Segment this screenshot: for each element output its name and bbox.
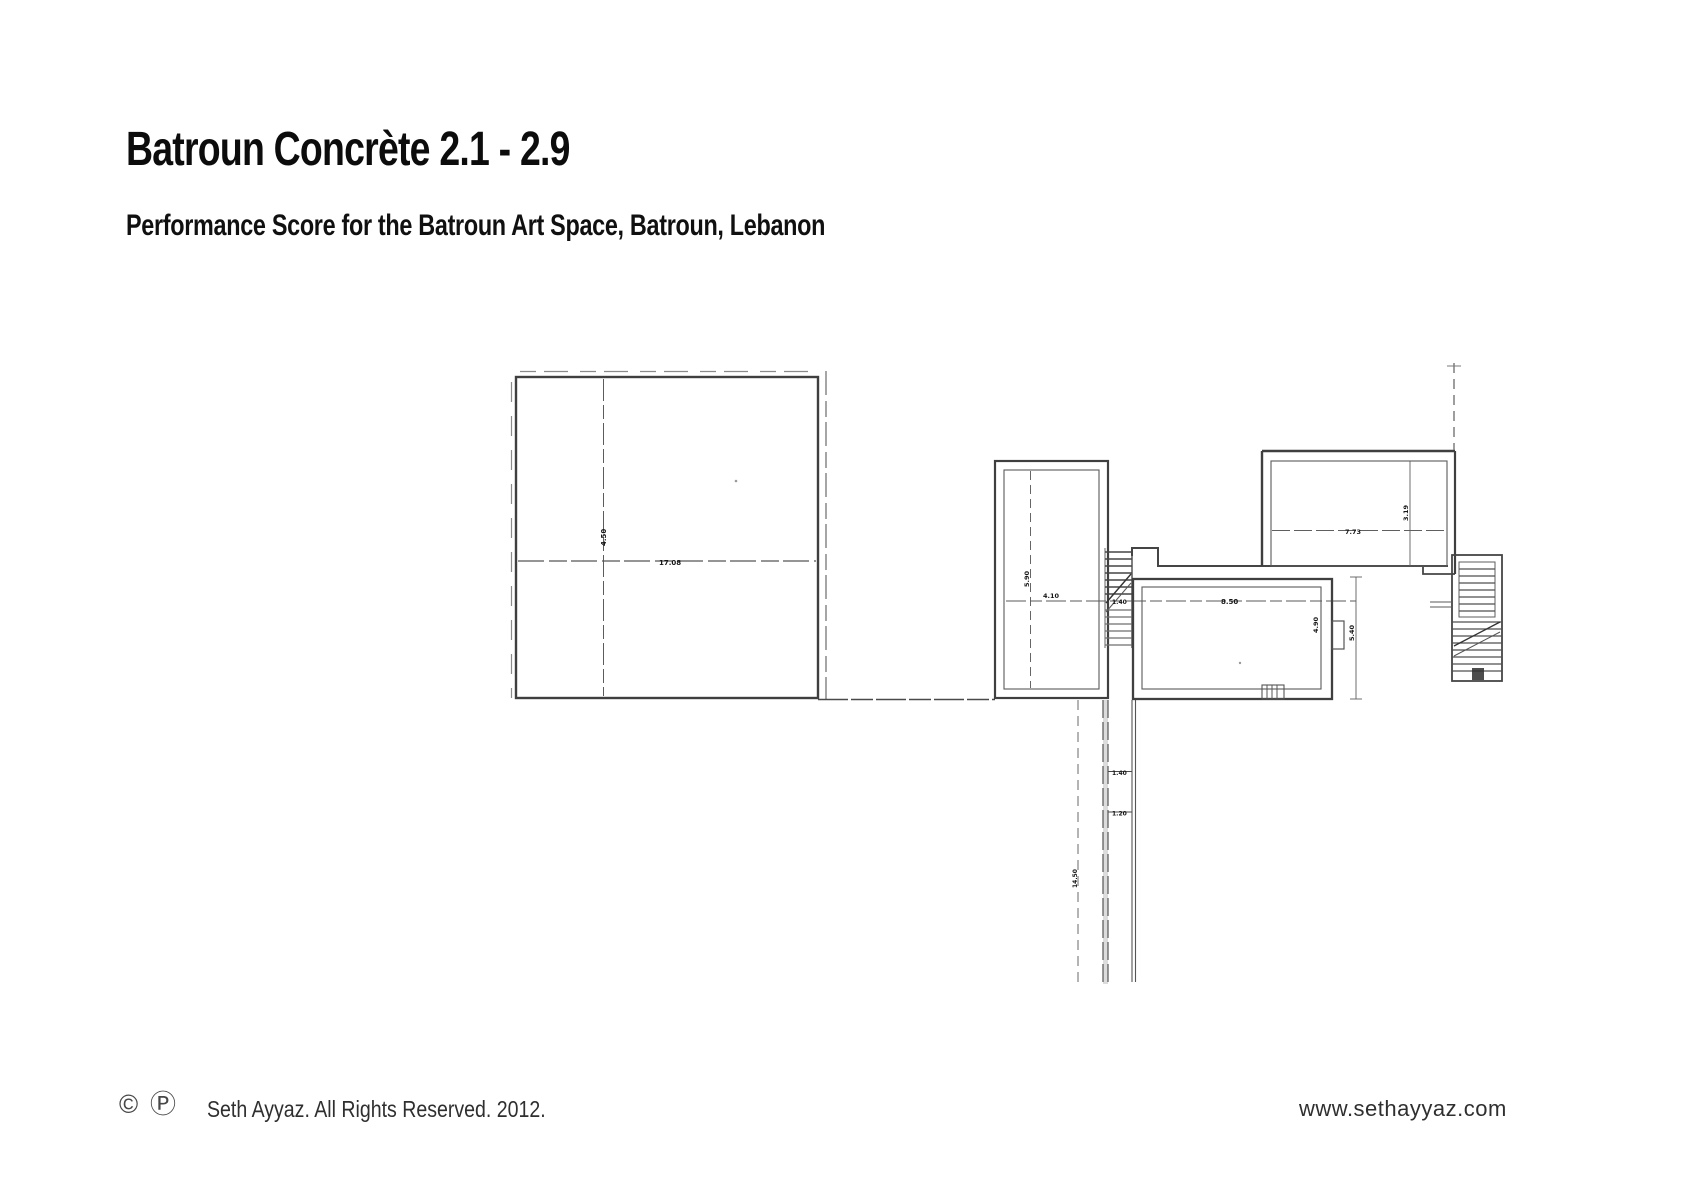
dimension-label: 4.90 <box>1312 616 1320 633</box>
dimension-label: 3.19 <box>1402 504 1410 521</box>
footer-rights-text: Seth Ayyaz. All Rights Reserved. 2012. <box>207 1097 546 1122</box>
scan-speck <box>735 480 738 483</box>
copyright-icon: © <box>119 1091 138 1117</box>
dimension-label: 7.73 <box>1345 528 1361 536</box>
dimension-label: 1.20 <box>1112 811 1127 818</box>
dimension-label: 1.40 <box>1112 770 1127 777</box>
dimension-label: 5.90 <box>1023 570 1031 587</box>
scan-speck <box>1239 662 1241 664</box>
dimension-label: 5.40 <box>1348 624 1356 641</box>
dimension-label: 1.40 <box>1112 599 1127 606</box>
dimension-label: 8.50 <box>1221 598 1238 606</box>
room-upper-right: 7.73 3.19 <box>1262 363 1461 574</box>
document-page: Batroun Concrète 2.1 - 2.9 Performance S… <box>0 0 1698 1200</box>
room-mid: 5.90 4.10 <box>995 461 1108 698</box>
floorplan-drawing: 4.50 17.08 5.90 4.10 <box>0 0 1698 1200</box>
footer-website-link[interactable]: www.sethayyaz.com <box>1299 1097 1507 1121</box>
room-large-hall: 4.50 17.08 <box>512 371 827 699</box>
wall-notch <box>1132 548 1455 574</box>
corridor: 1.40 1.20 14.50 <box>1072 700 1136 985</box>
dimension-label: 4.50 <box>600 529 608 546</box>
phonogram-icon: Ⓟ <box>150 1091 176 1117</box>
dimension-label: 14.50 <box>1072 869 1079 888</box>
room-lower: 8.50 4.90 <box>1133 579 1344 699</box>
dimension-label: 4.10 <box>1043 592 1060 600</box>
dimension-label: 17.08 <box>659 559 681 567</box>
